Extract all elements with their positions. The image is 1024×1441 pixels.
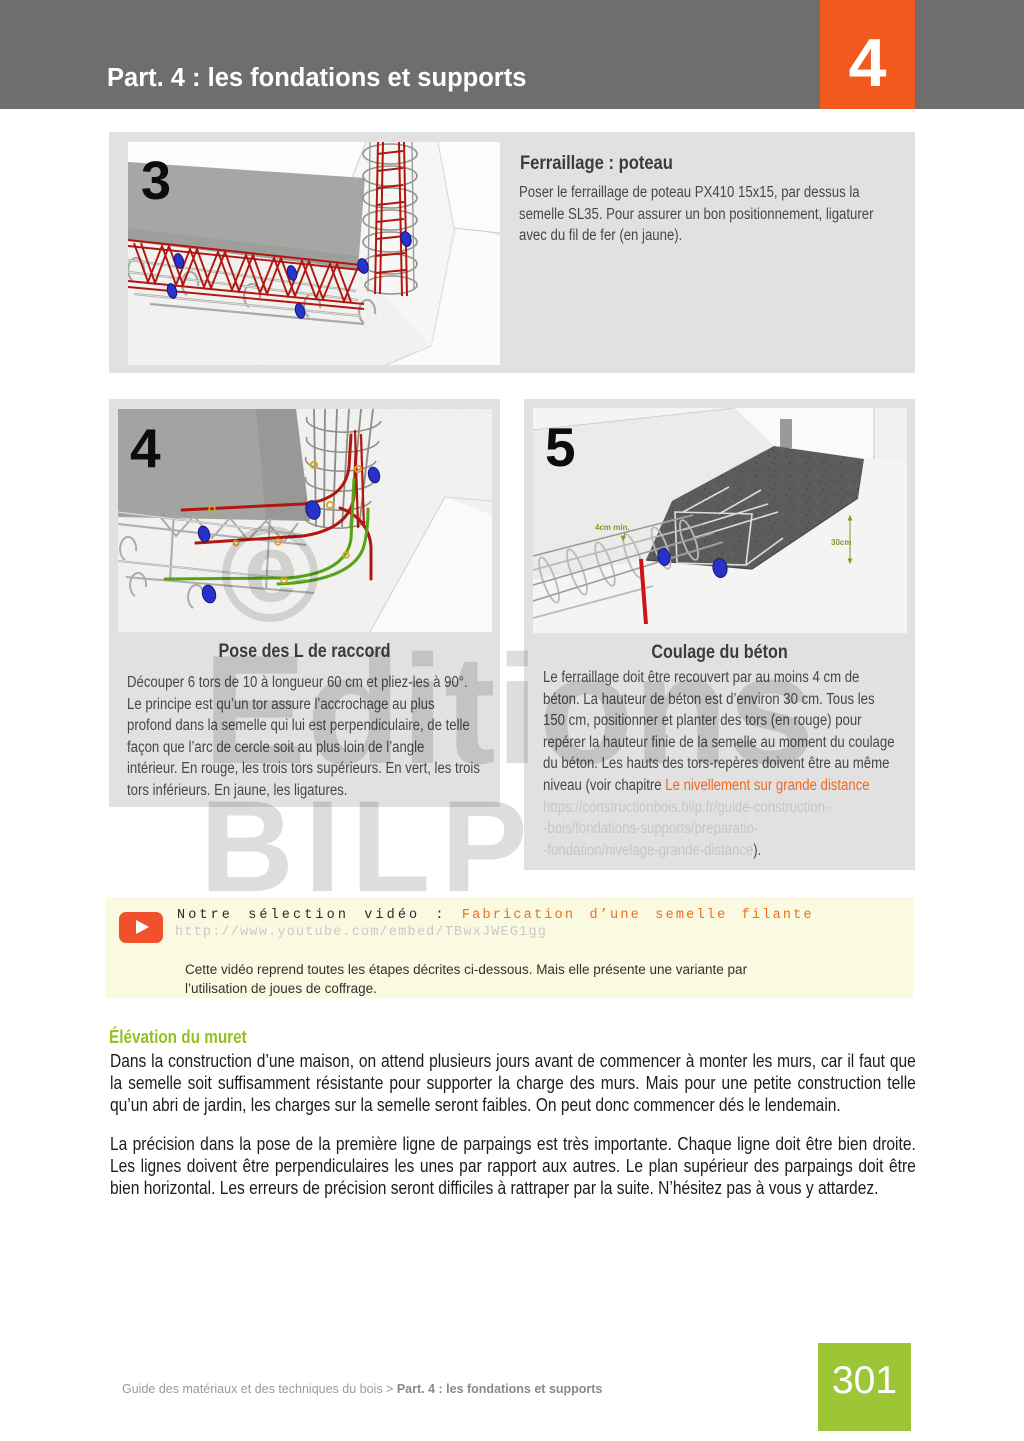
svg-text:3: 3 <box>141 151 171 211</box>
svg-text:4cm min.: 4cm min. <box>595 523 630 532</box>
svg-text:5: 5 <box>545 416 576 478</box>
svg-text:30cm: 30cm <box>831 538 851 547</box>
svg-text:4: 4 <box>130 417 161 479</box>
